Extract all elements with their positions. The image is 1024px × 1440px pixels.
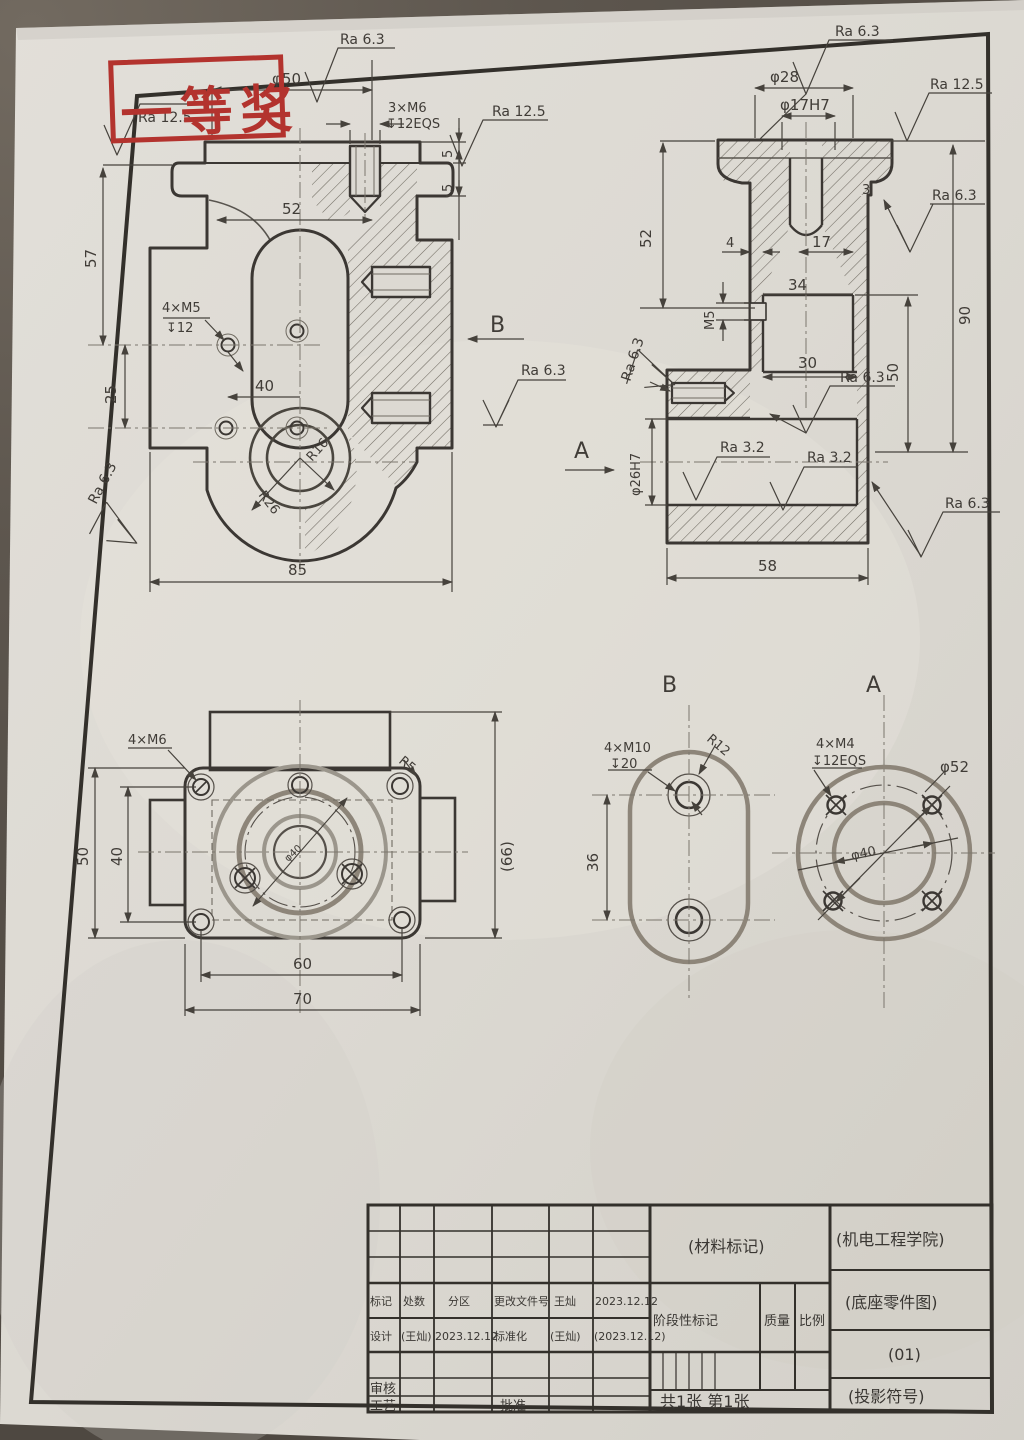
tb-mark: 标记 — [370, 1294, 392, 1308]
side-stud-upper — [362, 267, 430, 297]
dim-50-side: 50 — [884, 363, 902, 382]
b-view-title: B — [662, 673, 677, 698]
dim-m5: M5 — [703, 311, 718, 331]
dim-66: (66) — [498, 841, 516, 872]
tb-org: (机电工程学院) — [836, 1230, 945, 1249]
label-4xm6: 4×M6 — [128, 733, 167, 748]
tb-material-note: (材料标记) — [688, 1237, 765, 1256]
dim-50-bottom: 50 — [74, 847, 92, 866]
dim-25: 25 — [102, 385, 120, 404]
tb-design-date: 2023.12.12 — [435, 1330, 498, 1343]
ra-63-mid: Ra 6.3 — [840, 370, 885, 386]
tb-count: 处数 — [403, 1295, 425, 1308]
label-3xm6-depth: ↧12EQS — [386, 117, 440, 132]
label-4xm10-depth: ↧20 — [610, 757, 637, 772]
tb-standard-name: (王灿) — [550, 1330, 581, 1343]
photographed-drawing-sheet: Ra 12.5 φ50 Ra 6.3 3×M6 ↧12EQS Ra 12.5 5… — [0, 0, 1024, 1440]
dim-17: 17 — [812, 233, 831, 251]
dim-60: 60 — [293, 955, 312, 973]
dim-4: 4 — [726, 236, 734, 251]
a-view-title: A — [866, 673, 881, 698]
ra-125-right: Ra 12.5 — [492, 104, 546, 120]
dim-40-bottom: 40 — [108, 847, 126, 866]
tb-audit: 审核 — [370, 1382, 396, 1397]
tb-stage-label: 阶段性标记 — [653, 1314, 718, 1329]
dim-phi17h7: φ17H7 — [780, 96, 830, 114]
dim-40: 40 — [255, 377, 274, 395]
ra-32-b: Ra 3.2 — [807, 450, 852, 466]
tb-mass-label: 质量 — [764, 1314, 790, 1329]
dim-57: 57 — [82, 249, 100, 268]
tb-projection-note: (投影符号) — [848, 1387, 925, 1406]
dim-85: 85 — [288, 561, 307, 579]
ra-63-top2: Ra 6.3 — [835, 24, 880, 40]
ra-32-a: Ra 3.2 — [720, 440, 765, 456]
ra-63-top: Ra 6.3 — [340, 32, 385, 48]
award-stamp-text: 一等奖 — [119, 79, 301, 145]
view-arrow-b: B — [490, 313, 505, 338]
label-3xm6: 3×M6 — [388, 101, 427, 116]
dim-5a: 5 — [441, 150, 456, 158]
dim-3: 3 — [862, 183, 870, 198]
ra-63-near-b: Ra 6.3 — [521, 363, 566, 379]
dim-phi52: φ52 — [940, 758, 969, 776]
tb-sheet-info: 共1张 第1张 — [660, 1392, 749, 1411]
ra-63-br: Ra 6.3 — [945, 496, 990, 512]
tb-sign1: 王灿 — [554, 1295, 576, 1308]
tb-process: 工艺 — [370, 1399, 396, 1414]
dim-70: 70 — [293, 990, 312, 1008]
tb-date1: 2023.12.12 — [595, 1295, 658, 1308]
dim-30: 30 — [798, 354, 817, 372]
dim-58: 58 — [758, 557, 777, 575]
tb-standard: 标准化 — [494, 1329, 527, 1343]
left-stud — [672, 383, 734, 403]
tb-scale-label: 比例 — [799, 1314, 825, 1329]
tb-approve: 批准 — [500, 1399, 526, 1414]
ra-125-right2: Ra 12.5 — [930, 77, 984, 93]
dim-phi26h7: φ26H7 — [629, 453, 644, 496]
tb-standard-date: (2023.12.12) — [594, 1330, 666, 1343]
label-4xm4: 4×M4 — [816, 737, 855, 752]
paper-sheet — [0, 0, 1024, 1440]
view-arrow-a: A — [574, 439, 589, 464]
tb-design: 设计 — [370, 1330, 392, 1343]
dim-5b: 5 — [441, 184, 456, 192]
label-4xm10: 4×M10 — [604, 741, 651, 756]
tb-change-file: 更改文件号 — [494, 1294, 549, 1308]
label-4xm5-depth: ↧12 — [166, 321, 193, 336]
dim-90: 90 — [956, 306, 974, 325]
label-4xm5: 4×M5 — [162, 301, 201, 316]
label-4xm4-depth: ↧12EQS — [812, 754, 866, 769]
engineering-drawing: Ra 12.5 φ50 Ra 6.3 3×M6 ↧12EQS Ra 12.5 5… — [0, 0, 1024, 1440]
tb-drawing-title: (底座零件图) — [845, 1293, 938, 1312]
side-stud-lower — [362, 393, 430, 423]
dim-52: 52 — [282, 200, 301, 218]
dim-52-side: 52 — [637, 229, 655, 248]
tb-zone: 分区 — [448, 1295, 470, 1308]
dim-34: 34 — [788, 276, 807, 294]
dim-phi28: φ28 — [770, 68, 799, 86]
tb-drawing-no: (01) — [888, 1345, 921, 1364]
dim-36: 36 — [584, 853, 602, 872]
ra-63-right2: Ra 6.3 — [932, 188, 977, 204]
tb-design-name: (王灿) — [401, 1330, 432, 1343]
